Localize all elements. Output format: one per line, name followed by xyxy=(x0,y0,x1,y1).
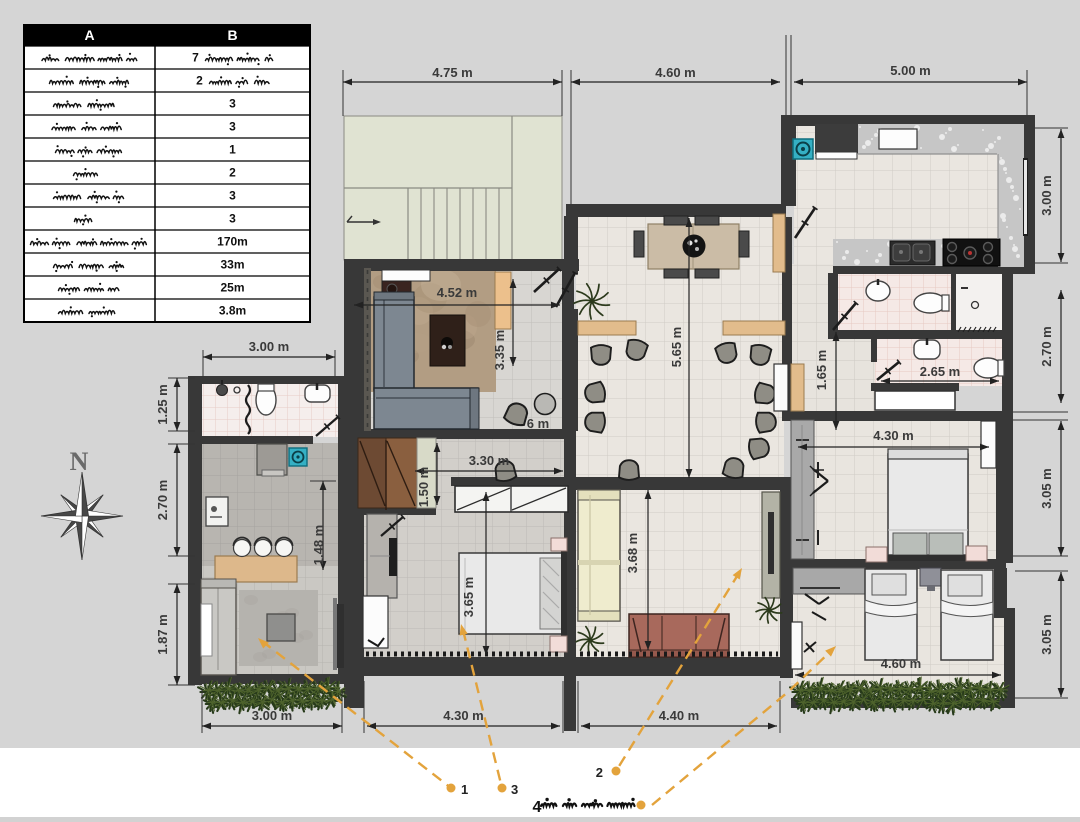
svg-text:1.87 m: 1.87 m xyxy=(155,614,170,654)
svg-text:3.8m: 3.8m xyxy=(219,304,246,318)
svg-text:6 m: 6 m xyxy=(527,416,549,431)
svg-text:1.25 m: 1.25 m xyxy=(155,384,170,424)
svg-text:4.75 m: 4.75 m xyxy=(432,65,472,80)
svg-text:3: 3 xyxy=(229,97,236,111)
svg-text:1.50 m: 1.50 m xyxy=(416,467,431,507)
svg-text:1.65 m: 1.65 m xyxy=(814,350,829,390)
svg-text:3: 3 xyxy=(229,189,236,203)
svg-text:3.05 m: 3.05 m xyxy=(1039,614,1054,654)
svg-text:2.70 m: 2.70 m xyxy=(1039,326,1054,366)
svg-text:5.65 m: 5.65 m xyxy=(669,327,684,367)
svg-text:3: 3 xyxy=(229,120,236,134)
svg-text:170m: 170m xyxy=(217,235,248,249)
svg-text:2: 2 xyxy=(196,74,203,88)
svg-text:3: 3 xyxy=(511,782,518,797)
svg-text:1.48 m: 1.48 m xyxy=(311,525,326,565)
svg-text:3.00 m: 3.00 m xyxy=(252,708,292,723)
svg-text:3.35 m: 3.35 m xyxy=(492,330,507,370)
svg-text:1: 1 xyxy=(461,782,468,797)
svg-text:5.00 m: 5.00 m xyxy=(890,63,930,78)
svg-text:3.68 m: 3.68 m xyxy=(625,533,640,573)
svg-text:1: 1 xyxy=(229,143,236,157)
svg-text:3.65 m: 3.65 m xyxy=(461,577,476,617)
svg-text:4.30 m: 4.30 m xyxy=(873,428,913,443)
svg-text:33m: 33m xyxy=(220,258,244,272)
svg-text:3.00 m: 3.00 m xyxy=(249,339,289,354)
svg-text:B: B xyxy=(227,27,237,43)
svg-text:4.30 m: 4.30 m xyxy=(443,708,483,723)
svg-text:3.05 m: 3.05 m xyxy=(1039,468,1054,508)
svg-text:4.60 m: 4.60 m xyxy=(655,65,695,80)
svg-text:N: N xyxy=(70,447,89,476)
svg-text:A: A xyxy=(84,27,94,43)
svg-text:4.60 m: 4.60 m xyxy=(881,656,921,671)
svg-text:7: 7 xyxy=(192,51,199,65)
svg-text:3.30 m: 3.30 m xyxy=(469,453,509,468)
svg-text:4.40 m: 4.40 m xyxy=(659,708,699,723)
svg-text:2: 2 xyxy=(229,166,236,180)
svg-text:3: 3 xyxy=(229,212,236,226)
svg-text:2: 2 xyxy=(596,765,603,780)
svg-text:4.52 m: 4.52 m xyxy=(437,285,477,300)
svg-text:2.65 m: 2.65 m xyxy=(920,364,960,379)
svg-text:25m: 25m xyxy=(220,281,244,295)
svg-text:3.00 m: 3.00 m xyxy=(1039,175,1054,215)
svg-text:4: 4 xyxy=(533,799,542,816)
svg-text:2.70 m: 2.70 m xyxy=(155,480,170,520)
